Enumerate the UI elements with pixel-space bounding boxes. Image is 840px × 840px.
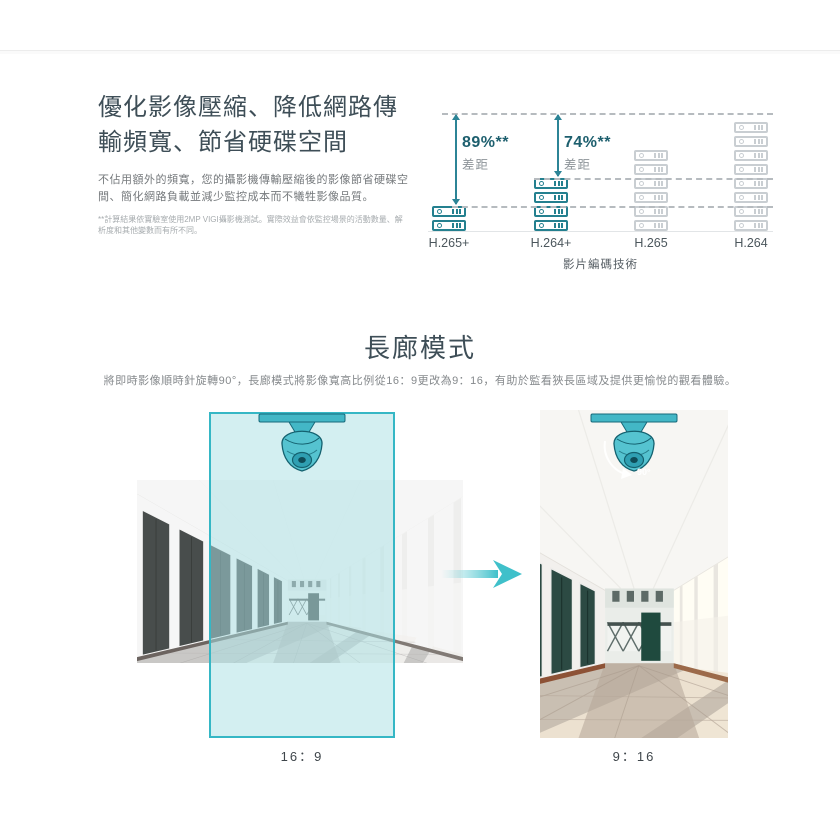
storage-disk-icon: [734, 192, 768, 203]
axis-tick-label: H.265: [615, 236, 687, 250]
reference-dash-top: [442, 113, 773, 115]
corridor-title: 長廊模式: [0, 328, 840, 365]
gap-percent: 89%**: [462, 134, 509, 152]
storage-disk-icon: [432, 220, 466, 231]
storage-disk-icon: [734, 122, 768, 133]
storage-stack: [432, 206, 466, 231]
storage-stack: [534, 178, 568, 231]
axis-tick-label: H.264+: [515, 236, 587, 250]
gap-arrow: [455, 115, 457, 204]
axis-title: 影片編碼技術: [428, 256, 773, 272]
storage-disk-icon: [534, 220, 568, 231]
compression-footnote: **計算結果依實驗室使用2MP VIGI攝影機測試。實際效益會依監控場景的活動數…: [98, 214, 404, 236]
x-axis-line: [428, 231, 773, 232]
storage-disk-icon: [734, 136, 768, 147]
axis-tick-label: H.265+: [413, 236, 485, 250]
storage-disk-icon: [534, 192, 568, 203]
compression-description: 不佔用額外的頻寬，您的攝影機傳輸壓縮後的影像節省硬碟空間、簡化網路負載並減少監控…: [98, 172, 416, 206]
compression-title-line2: 輸頻寬、節省硬碟空間: [98, 125, 428, 160]
storage-disk-icon: [634, 150, 668, 161]
storage-disk-icon: [634, 220, 668, 231]
svg-text:90°: 90°: [637, 467, 651, 477]
gap-arrow: [557, 115, 559, 176]
corridor-description: 將即時影像順時針旋轉90°，長廊模式將影像寬高比例從16：9更改為9：16，有助…: [0, 372, 840, 388]
section-divider: [0, 50, 840, 54]
gap-annotation: 89%** 差距: [462, 134, 509, 173]
storage-disk-icon: [734, 164, 768, 175]
storage-disk-icon: [634, 192, 668, 203]
storage-stack: [734, 122, 768, 231]
before-ratio-label: 16：9: [209, 746, 395, 765]
transform-arrow-icon: [441, 557, 523, 591]
storage-stack: [634, 150, 668, 231]
compression-title: 優化影像壓縮、降低網路傳 輸頻寬、節省硬碟空間: [98, 90, 428, 160]
reference-dash-line: [452, 206, 773, 208]
reference-dash-line: [534, 178, 773, 180]
dome-camera-rotated-icon: 90°: [588, 412, 680, 482]
compression-title-line1: 優化影像壓縮、降低網路傳: [98, 90, 428, 125]
storage-disk-icon: [734, 150, 768, 161]
codec-chart: H.265+H.264+H.265H.26489%** 差距74%** 差距影片…: [428, 98, 778, 278]
gap-annotation: 74%** 差距: [564, 134, 611, 173]
gap-percent: 74%**: [564, 134, 611, 152]
gap-sublabel: 差距: [462, 154, 509, 173]
storage-disk-icon: [734, 220, 768, 231]
storage-disk-icon: [634, 164, 668, 175]
dome-camera-icon: [256, 413, 348, 481]
after-ratio-label: 9：16: [540, 746, 728, 765]
axis-tick-label: H.264: [715, 236, 787, 250]
gap-sublabel: 差距: [564, 154, 611, 173]
